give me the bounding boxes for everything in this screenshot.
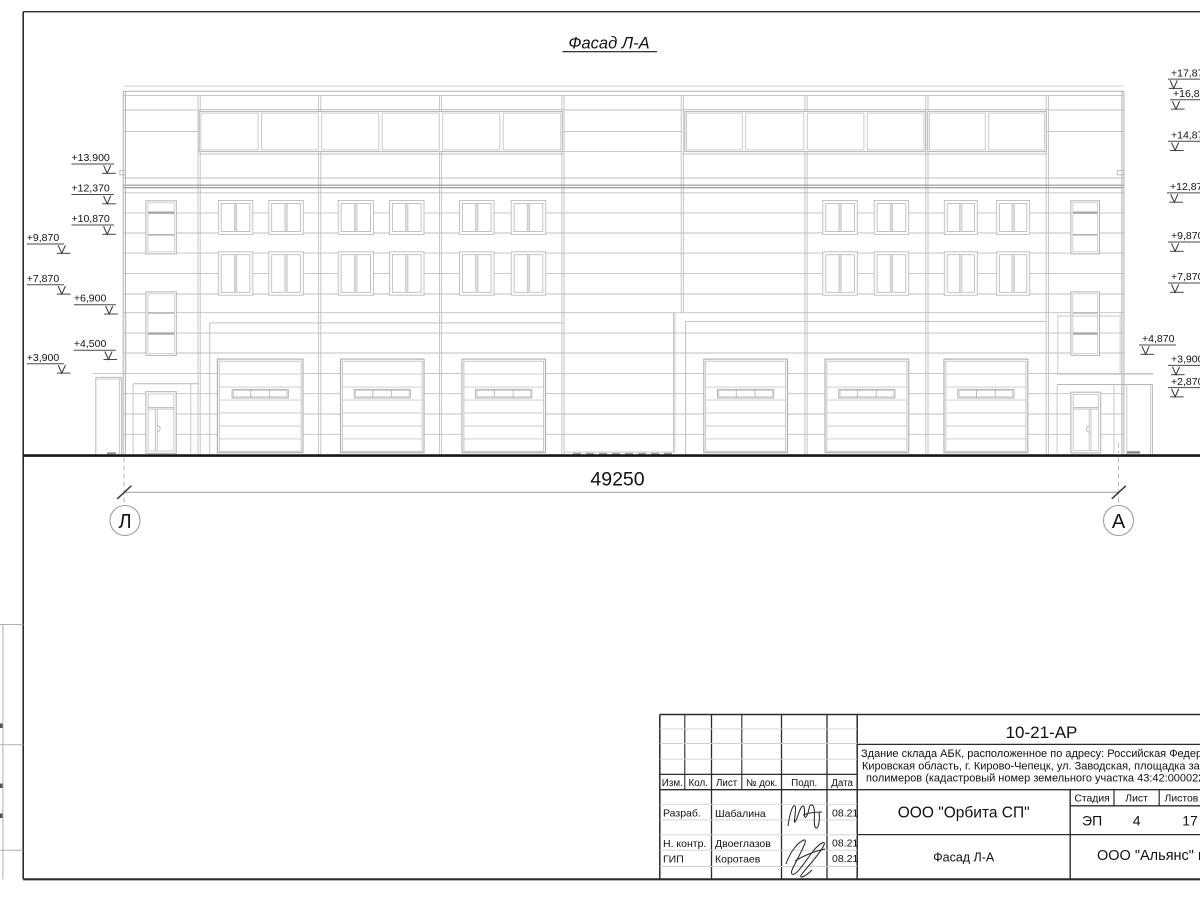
- svg-text:+4,870: +4,870: [1142, 333, 1175, 345]
- svg-text:+3,900: +3,900: [27, 352, 60, 364]
- svg-text:10-21-АР: 10-21-АР: [1006, 723, 1078, 742]
- svg-text:+4,500: +4,500: [74, 338, 107, 350]
- svg-text:Здание склада АБК, расположенн: Здание склада АБК, расположенное по адре…: [861, 748, 1200, 760]
- svg-text:08.21: 08.21: [832, 838, 858, 850]
- svg-text:+16,870: +16,870: [1173, 88, 1200, 100]
- svg-text:Коротаев: Коротаев: [715, 854, 761, 866]
- svg-text:ЭП: ЭП: [1082, 813, 1102, 829]
- svg-text:Разраб.: Разраб.: [663, 808, 701, 820]
- svg-text:Изм.: Изм.: [662, 778, 683, 789]
- svg-text:№ док.: № док.: [746, 778, 777, 789]
- svg-text:Л: Л: [118, 511, 131, 533]
- svg-text:ГИП: ГИП: [663, 853, 684, 865]
- svg-text:08.21: 08.21: [832, 808, 858, 820]
- svg-text:4: 4: [1133, 813, 1141, 829]
- svg-text:+10,870: +10,870: [72, 213, 110, 225]
- svg-text:Дата: Дата: [831, 778, 853, 789]
- svg-text:+7,870: +7,870: [27, 273, 60, 285]
- svg-text:+17,870: +17,870: [1171, 67, 1200, 79]
- svg-text:+13.900: +13.900: [72, 152, 110, 164]
- svg-text:+14,870: +14,870: [1171, 129, 1200, 141]
- svg-text:08.21: 08.21: [832, 853, 858, 865]
- svg-text:Лист: Лист: [716, 778, 738, 789]
- svg-text:Кировская область, г. Кирово-Ч: Кировская область, г. Кирово-Чепецк, ул.…: [862, 760, 1200, 772]
- svg-text:ООО "Альянс" г.: ООО "Альянс" г.: [1097, 848, 1200, 864]
- svg-text:Н. контр.: Н. контр.: [663, 838, 706, 850]
- svg-text:Фасад Л-А: Фасад Л-А: [568, 35, 649, 53]
- svg-text:49250: 49250: [590, 468, 644, 490]
- svg-text:+9,870: +9,870: [1171, 230, 1200, 242]
- svg-text:+6,900: +6,900: [74, 293, 107, 305]
- svg-text:полимеров (кадастровый номер з: полимеров (кадастровый номер земельного …: [866, 772, 1200, 784]
- svg-text:17: 17: [1182, 813, 1198, 829]
- svg-text:Подп.: Подп.: [791, 778, 817, 789]
- svg-text:Кол.: Кол.: [689, 778, 708, 789]
- svg-text:Стадия: Стадия: [1074, 794, 1109, 805]
- svg-text:Лист: Лист: [1125, 794, 1148, 805]
- svg-text:+12,370: +12,370: [72, 183, 110, 195]
- svg-text:Шабалина: Шабалина: [715, 808, 766, 820]
- svg-text:ООО "Орбита СП": ООО "Орбита СП": [898, 805, 1030, 822]
- svg-text:+3,900: +3,900: [1171, 354, 1200, 366]
- svg-text:Фасад Л-А: Фасад Л-А: [933, 851, 995, 865]
- svg-text:Листов: Листов: [1165, 794, 1199, 805]
- svg-text:+9,870: +9,870: [27, 232, 60, 244]
- svg-text:Двоеглазов: Двоеглазов: [715, 838, 771, 850]
- svg-text:А: А: [1112, 511, 1126, 533]
- svg-text:+7,870: +7,870: [1171, 271, 1200, 283]
- svg-text:+2,870: +2,870: [1171, 376, 1200, 388]
- svg-text:+12,870: +12,870: [1170, 181, 1200, 193]
